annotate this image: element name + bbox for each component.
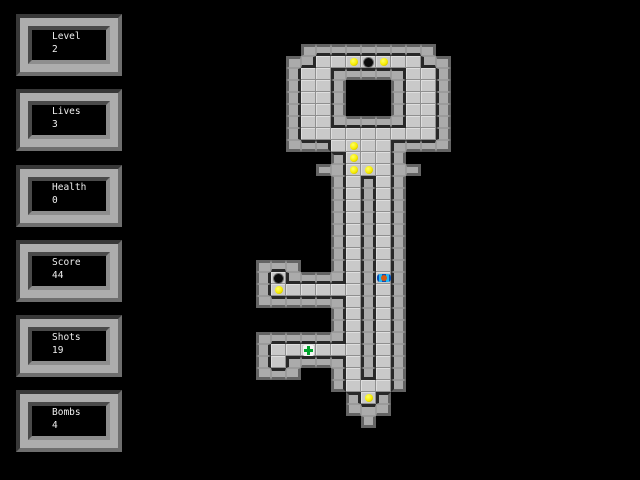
floor-tile	[406, 68, 421, 80]
keyhole-opening	[376, 80, 391, 92]
wall-block	[376, 44, 391, 56]
wall-block	[361, 224, 376, 236]
wall-block	[346, 68, 361, 80]
wall-block	[346, 404, 361, 416]
wall-block	[391, 164, 406, 176]
wall-block	[436, 80, 451, 92]
floor-tile	[376, 56, 391, 68]
wall-block	[331, 368, 346, 380]
floor-tile	[421, 68, 436, 80]
wall-block	[391, 296, 406, 308]
floor-tile	[406, 116, 421, 128]
panel-display: Level2	[28, 26, 110, 64]
wall-block	[391, 68, 406, 80]
floor-tile	[346, 188, 361, 200]
floor-tile	[271, 272, 286, 284]
wall-block	[361, 116, 376, 128]
floor-tile	[316, 80, 331, 92]
wall-block	[376, 68, 391, 80]
stat-value: 0	[52, 195, 106, 208]
wall-block	[286, 116, 301, 128]
gem-item	[350, 142, 358, 150]
floor-tile	[316, 56, 331, 68]
floor-tile	[346, 128, 361, 140]
wall-block	[391, 356, 406, 368]
wall-block	[301, 272, 316, 284]
wall-block	[361, 44, 376, 56]
floor-tile	[376, 212, 391, 224]
wall-block	[391, 152, 406, 164]
wall-block	[316, 296, 331, 308]
stat-label: Score	[52, 257, 106, 270]
keyhole-opening	[361, 92, 376, 104]
floor-tile	[376, 236, 391, 248]
wall-block	[361, 296, 376, 308]
floor-tile	[346, 236, 361, 248]
wall-block	[361, 416, 376, 428]
wall-block	[331, 68, 346, 80]
wall-block	[256, 356, 271, 368]
floor-tile	[421, 80, 436, 92]
wall-block	[256, 296, 271, 308]
floor-tile	[271, 356, 286, 368]
maze-grid[interactable]	[256, 44, 451, 428]
gem-item	[365, 166, 373, 174]
floor-tile	[346, 380, 361, 392]
panel-bombs: Bombs4	[16, 390, 122, 452]
floor-tile	[421, 92, 436, 104]
floor-tile	[271, 284, 286, 296]
floor-tile	[376, 224, 391, 236]
wall-block	[256, 368, 271, 380]
floor-tile	[346, 152, 361, 164]
wall-block	[316, 272, 331, 284]
floor-tile	[331, 284, 346, 296]
wall-block	[256, 284, 271, 296]
wall-block	[331, 236, 346, 248]
floor-tile	[346, 272, 361, 284]
gem-item	[350, 154, 358, 162]
floor-tile	[406, 92, 421, 104]
wall-block	[421, 44, 436, 56]
floor-tile	[346, 332, 361, 344]
floor-tile	[346, 164, 361, 176]
floor-tile	[406, 80, 421, 92]
wall-block	[331, 248, 346, 260]
panel-display: Lives3	[28, 101, 110, 139]
wall-block	[301, 140, 316, 152]
wall-block	[391, 92, 406, 104]
floor-tile	[346, 368, 361, 380]
wall-block	[331, 272, 346, 284]
gem-item	[380, 58, 388, 66]
wall-block	[436, 128, 451, 140]
wall-block	[391, 368, 406, 380]
floor-tile	[346, 56, 361, 68]
wall-block	[421, 56, 436, 68]
player-sprite[interactable]	[377, 274, 391, 282]
wall-block	[346, 44, 361, 56]
wall-block	[331, 260, 346, 272]
wall-block	[376, 116, 391, 128]
floor-tile	[316, 284, 331, 296]
wall-block	[271, 332, 286, 344]
floor-tile	[361, 56, 376, 68]
wall-block	[331, 80, 346, 92]
wall-block	[346, 116, 361, 128]
wall-block	[256, 332, 271, 344]
wall-block	[391, 224, 406, 236]
keyhole-opening	[346, 104, 361, 116]
panel-frame: Shots19	[20, 319, 118, 373]
floor-tile	[376, 176, 391, 188]
wall-block	[286, 332, 301, 344]
floor-tile	[316, 344, 331, 356]
wall-block	[361, 176, 376, 188]
wall-block	[361, 308, 376, 320]
panel-level: Level2	[16, 14, 122, 76]
floor-tile	[301, 284, 316, 296]
floor-tile	[376, 308, 391, 320]
wall-block	[421, 140, 436, 152]
wall-block	[331, 92, 346, 104]
wall-block	[391, 212, 406, 224]
floor-tile	[316, 104, 331, 116]
wall-block	[331, 116, 346, 128]
floor-tile	[376, 140, 391, 152]
wall-block	[286, 128, 301, 140]
wall-block	[361, 368, 376, 380]
gem-item	[350, 58, 358, 66]
floor-tile	[316, 116, 331, 128]
wall-block	[256, 260, 271, 272]
wall-block	[391, 332, 406, 344]
floor-tile	[301, 116, 316, 128]
wall-block	[346, 392, 361, 404]
floor-tile	[331, 344, 346, 356]
floor-tile	[286, 284, 301, 296]
wall-block	[316, 164, 331, 176]
panel-frame: Bombs4	[20, 394, 118, 448]
floor-tile	[376, 368, 391, 380]
wall-block	[331, 308, 346, 320]
wall-block	[436, 140, 451, 152]
stat-label: Bombs	[52, 407, 106, 420]
wall-block	[316, 356, 331, 368]
floor-tile	[316, 92, 331, 104]
wall-block	[436, 104, 451, 116]
floor-tile	[361, 164, 376, 176]
keyhole-opening	[361, 80, 376, 92]
wall-block	[256, 272, 271, 284]
wall-block	[331, 44, 346, 56]
wall-block	[391, 272, 406, 284]
wall-block	[286, 296, 301, 308]
wall-block	[301, 56, 316, 68]
floor-tile	[361, 380, 376, 392]
wall-block	[406, 44, 421, 56]
stat-label: Health	[52, 182, 106, 195]
wall-block	[391, 80, 406, 92]
wall-block	[391, 116, 406, 128]
panel-display: Shots19	[28, 327, 110, 365]
floor-tile	[301, 68, 316, 80]
keyhole-opening	[346, 92, 361, 104]
wall-block	[286, 368, 301, 380]
wall-block	[301, 356, 316, 368]
wall-block	[301, 296, 316, 308]
floor-tile	[421, 116, 436, 128]
wall-block	[271, 260, 286, 272]
floor-tile	[346, 200, 361, 212]
wall-block	[316, 332, 331, 344]
wall-block	[331, 152, 346, 164]
wall-block	[301, 332, 316, 344]
panel-display: Bombs4	[28, 402, 110, 440]
stat-label: Lives	[52, 106, 106, 119]
gem-item	[365, 394, 373, 402]
panel-health: Health0	[16, 165, 122, 227]
floor-tile	[361, 392, 376, 404]
floor-tile	[301, 80, 316, 92]
wall-block	[331, 188, 346, 200]
wall-block	[391, 260, 406, 272]
floor-tile	[376, 188, 391, 200]
wall-block	[331, 224, 346, 236]
keyhole-opening	[346, 80, 361, 92]
wall-block	[331, 320, 346, 332]
panel-shots: Shots19	[16, 315, 122, 377]
panel-frame: Health0	[20, 169, 118, 223]
floor-tile	[271, 344, 286, 356]
panel-display: Score44	[28, 252, 110, 290]
floor-tile	[346, 176, 361, 188]
floor-tile	[391, 56, 406, 68]
wall-block	[271, 296, 286, 308]
floor-tile	[346, 284, 361, 296]
wall-block	[286, 92, 301, 104]
game-screen: Level2 Lives3 Health0 Score44 Shots19 Bo	[0, 0, 640, 480]
wall-block	[361, 356, 376, 368]
floor-tile	[376, 164, 391, 176]
floor-tile	[346, 260, 361, 272]
wall-block	[361, 404, 376, 416]
wall-block	[376, 392, 391, 404]
wall-block	[286, 140, 301, 152]
panel-score: Score44	[16, 240, 122, 302]
stat-value: 3	[52, 119, 106, 132]
floor-tile	[331, 128, 346, 140]
floor-tile	[346, 140, 361, 152]
floor-tile	[316, 68, 331, 80]
floor-tile	[421, 104, 436, 116]
wall-block	[391, 248, 406, 260]
wall-block	[331, 332, 346, 344]
wall-block	[286, 260, 301, 272]
stat-value: 19	[52, 345, 106, 358]
floor-tile	[376, 128, 391, 140]
stat-label: Level	[52, 31, 106, 44]
floor-tile	[301, 104, 316, 116]
gem-item	[350, 166, 358, 174]
wall-block	[361, 68, 376, 80]
floor-tile	[376, 332, 391, 344]
wall-block	[391, 44, 406, 56]
floor-tile	[376, 152, 391, 164]
wall-block	[331, 356, 346, 368]
floor-tile	[376, 272, 391, 284]
wall-block	[331, 104, 346, 116]
floor-tile	[346, 344, 361, 356]
wall-block	[286, 68, 301, 80]
wall-block	[436, 92, 451, 104]
floor-tile	[376, 200, 391, 212]
wall-block	[391, 176, 406, 188]
wall-block	[361, 272, 376, 284]
wall-block	[271, 368, 286, 380]
wall-block	[316, 140, 331, 152]
wall-block	[436, 116, 451, 128]
wall-block	[391, 320, 406, 332]
wall-block	[286, 356, 301, 368]
floor-tile	[376, 260, 391, 272]
floor-tile	[376, 296, 391, 308]
wall-block	[436, 68, 451, 80]
floor-tile	[421, 128, 436, 140]
wall-block	[391, 236, 406, 248]
wall-block	[256, 344, 271, 356]
stat-label: Shots	[52, 332, 106, 345]
wall-block	[391, 308, 406, 320]
floor-tile	[346, 356, 361, 368]
stat-value: 44	[52, 270, 106, 283]
floor-tile	[331, 56, 346, 68]
wall-block	[286, 272, 301, 284]
floor-tile	[406, 128, 421, 140]
wall-block	[406, 140, 421, 152]
wall-block	[361, 212, 376, 224]
floor-tile	[346, 296, 361, 308]
wall-block	[301, 44, 316, 56]
wall-block	[361, 188, 376, 200]
floor-tile	[301, 344, 316, 356]
wall-block	[361, 248, 376, 260]
wall-block	[361, 236, 376, 248]
wall-block	[331, 164, 346, 176]
stat-value: 4	[52, 420, 106, 433]
keyhole-opening	[376, 104, 391, 116]
floor-tile	[361, 152, 376, 164]
wall-block	[391, 188, 406, 200]
wall-block	[391, 344, 406, 356]
floor-tile	[346, 212, 361, 224]
panel-lives: Lives3	[16, 89, 122, 151]
panel-display: Health0	[28, 177, 110, 215]
floor-tile	[376, 356, 391, 368]
hole-item	[274, 274, 283, 283]
health-item	[303, 345, 314, 356]
floor-tile	[346, 224, 361, 236]
keyhole-opening	[361, 104, 376, 116]
floor-tile	[361, 128, 376, 140]
floor-tile	[346, 308, 361, 320]
wall-block	[391, 104, 406, 116]
wall-block	[376, 404, 391, 416]
wall-block	[331, 200, 346, 212]
floor-tile	[376, 380, 391, 392]
panel-frame: Lives3	[20, 93, 118, 147]
wall-block	[331, 296, 346, 308]
wall-block	[391, 200, 406, 212]
wall-block	[391, 284, 406, 296]
wall-block	[361, 344, 376, 356]
wall-block	[286, 80, 301, 92]
floor-tile	[376, 320, 391, 332]
panel-frame: Score44	[20, 244, 118, 298]
floor-tile	[361, 140, 376, 152]
floor-tile	[316, 128, 331, 140]
wall-block	[361, 320, 376, 332]
floor-tile	[406, 56, 421, 68]
keyhole-opening	[376, 92, 391, 104]
floor-tile	[346, 248, 361, 260]
floor-tile	[376, 344, 391, 356]
stat-value: 2	[52, 44, 106, 57]
wall-block	[316, 44, 331, 56]
wall-block	[286, 104, 301, 116]
wall-block	[361, 332, 376, 344]
wall-block	[436, 56, 451, 68]
hole-item	[364, 58, 373, 67]
floor-tile	[301, 128, 316, 140]
wall-block	[331, 212, 346, 224]
floor-tile	[376, 284, 391, 296]
panel-frame: Level2	[20, 18, 118, 72]
wall-block	[391, 140, 406, 152]
gem-item	[275, 286, 283, 294]
floor-tile	[376, 248, 391, 260]
floor-tile	[286, 344, 301, 356]
wall-block	[361, 200, 376, 212]
wall-block	[331, 380, 346, 392]
floor-tile	[331, 140, 346, 152]
floor-tile	[391, 128, 406, 140]
wall-block	[406, 164, 421, 176]
wall-block	[361, 284, 376, 296]
wall-block	[286, 56, 301, 68]
floor-tile	[346, 320, 361, 332]
wall-block	[331, 176, 346, 188]
floor-tile	[301, 92, 316, 104]
floor-tile	[406, 104, 421, 116]
wall-block	[361, 260, 376, 272]
wall-block	[391, 380, 406, 392]
